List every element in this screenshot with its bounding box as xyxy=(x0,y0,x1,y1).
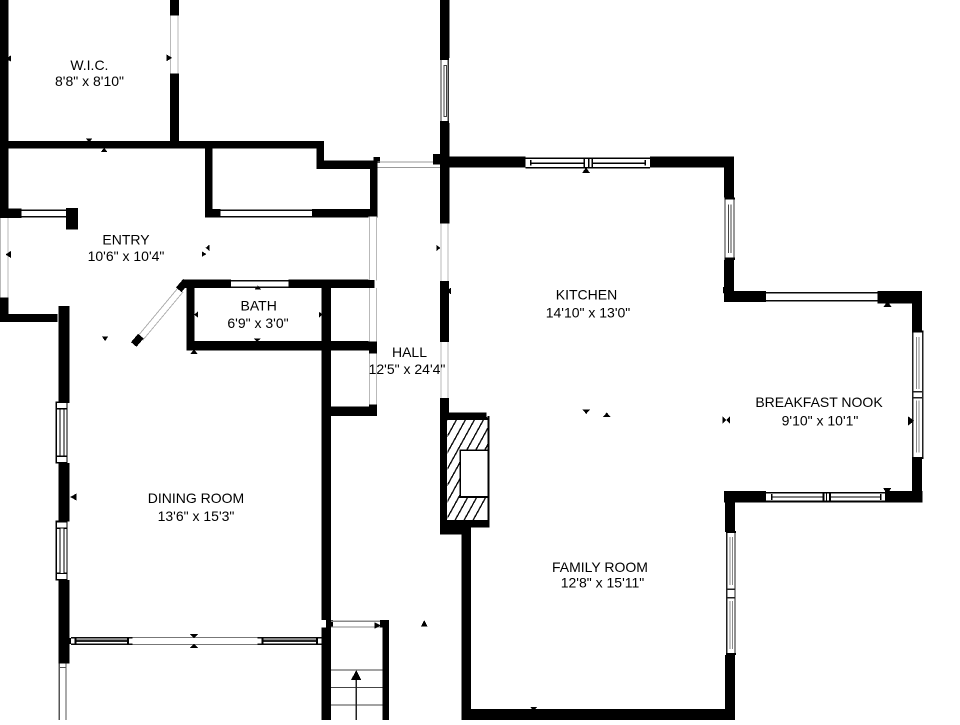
svg-text:9'10" x 10'1": 9'10" x 10'1" xyxy=(782,413,859,429)
svg-text:DINING ROOM: DINING ROOM xyxy=(148,490,244,506)
svg-text:ENTRY: ENTRY xyxy=(102,232,150,248)
svg-text:14'10" x 13'0": 14'10" x 13'0" xyxy=(546,305,631,321)
svg-text:BATH: BATH xyxy=(241,298,277,314)
svg-text:W.I.C.: W.I.C. xyxy=(70,57,108,73)
svg-text:8'8" x 8'10": 8'8" x 8'10" xyxy=(55,73,124,89)
svg-text:12'8" x 15'11": 12'8" x 15'11" xyxy=(561,575,645,591)
svg-text:HALL: HALL xyxy=(392,344,427,360)
svg-text:12'5" x 24'4": 12'5" x 24'4" xyxy=(369,361,446,377)
svg-text:FAMILY ROOM: FAMILY ROOM xyxy=(552,559,648,575)
svg-text:BREAKFAST NOOK: BREAKFAST NOOK xyxy=(755,394,883,410)
svg-text:10'6" x 10'4": 10'6" x 10'4" xyxy=(88,248,165,264)
svg-text:KITCHEN: KITCHEN xyxy=(556,287,617,303)
svg-text:6'9" x 3'0": 6'9" x 3'0" xyxy=(227,315,288,331)
svg-text:13'6" x 15'3": 13'6" x 15'3" xyxy=(158,508,235,524)
